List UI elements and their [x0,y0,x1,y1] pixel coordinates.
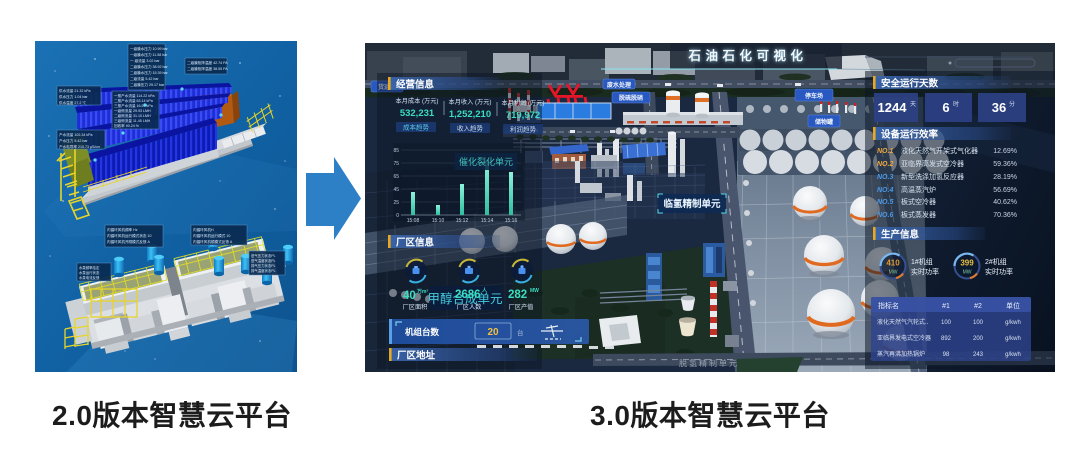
svg-text:产水流量 102.34 kPa: 产水流量 102.34 kPa [59,132,93,137]
svg-text:产水电导率 210.73 µS/cm: 产水电导率 210.73 µS/cm [59,144,100,149]
svg-text:临氢精制单元: 临氢精制单元 [663,198,721,210]
svg-text:1,252,210: 1,252,210 [449,109,491,120]
svg-text:本月收入 (万元): 本月收入 (万元) [449,98,492,106]
svg-text:厂区地址: 厂区地址 [397,350,436,362]
svg-text:二级侧流量 31.10 LMH: 二级侧流量 31.10 LMH [114,113,151,118]
svg-text:56.69%: 56.69% [993,187,1017,194]
svg-text:水泵频率给定: 水泵频率给定 [79,265,100,270]
svg-text:设备运行效率: 设备运行效率 [881,129,939,141]
svg-text:万m²: 万m² [416,288,428,295]
svg-text:水泵运行状态: 水泵运行状态 [79,270,100,275]
svg-text:三级侧流量 11.45 LMH: 三级侧流量 11.45 LMH [114,118,151,123]
svg-text:28.19%: 28.19% [993,174,1017,181]
svg-text:供水温度 27.2 ℃: 供水温度 27.2 ℃ [59,100,86,105]
svg-text:NO.3: NO.3 [877,174,893,181]
svg-text:1#机组: 1#机组 [911,257,933,266]
svg-text:三般产水流量 16.57 kPa: 三般产水流量 16.57 kPa [114,103,153,108]
svg-text:实时功率: 实时功率 [911,267,939,276]
svg-text:二级膜矩阵温度 42.74 PA: 二级膜矩阵温度 42.74 PA [187,60,228,65]
svg-text:排气压力状态PL: 排气压力状态PL [251,263,276,268]
svg-text:12.69%: 12.69% [993,148,1017,155]
svg-text:石油石化可视化: 石油石化可视化 [687,48,807,63]
svg-text:243: 243 [973,352,984,358]
svg-text:NO.5: NO.5 [877,199,893,206]
svg-text:g/kwh: g/kwh [1005,352,1021,358]
svg-text:液化天然气开架式气化器: 液化天然气开架式气化器 [901,146,978,155]
svg-text:利润趋势: 利润趋势 [510,125,537,134]
svg-text:一级膜水压力 10.99 bar: 一级膜水压力 10.99 bar [130,46,169,51]
svg-text:废水处理: 废水处理 [607,81,631,89]
svg-text:亚临界发电式空冷器: 亚临界发电式空冷器 [877,334,931,342]
svg-text:70.36%: 70.36% [993,212,1017,219]
svg-text:供水流量 21.32 kPa: 供水流量 21.32 kPa [59,88,91,93]
svg-text:机组台数: 机组台数 [405,327,440,337]
svg-text:二级膜水压力 15.39 bar: 二级膜水压力 15.39 bar [130,70,169,75]
svg-text:15:10: 15:10 [432,218,445,224]
svg-text:g/kwh: g/kwh [1005,336,1021,342]
svg-text:719,972: 719,972 [506,110,540,121]
svg-text:厂区信息: 厂区信息 [396,237,435,249]
svg-text:厂区面积: 厂区面积 [403,303,428,311]
svg-text:75: 75 [393,161,399,167]
svg-text:一般产水流量 114.22 kPa: 一般产水流量 114.22 kPa [114,93,154,98]
svg-text:MW: MW [889,270,898,276]
svg-text:6: 6 [942,100,949,115]
svg-text:指标名: 指标名 [878,301,899,310]
svg-text:0: 0 [396,213,399,219]
svg-text:脱氢精制单元: 脱氢精制单元 [679,358,739,368]
svg-text:85: 85 [393,148,399,154]
svg-text:#1: #1 [942,303,950,310]
svg-text:65: 65 [393,174,399,180]
svg-text:一级膜水压力 11.58 bar: 一级膜水压力 11.58 bar [130,52,168,57]
svg-text:25: 25 [393,200,399,206]
svg-text:410: 410 [886,259,900,268]
svg-text:892: 892 [941,336,952,342]
svg-text:新型洗涤加氢反应器: 新型洗涤加氢反应器 [901,172,964,181]
svg-text:100: 100 [973,320,984,326]
svg-text:内循环风机H: 内循环风机H [193,227,214,232]
svg-text:15:12: 15:12 [456,218,469,224]
svg-text:分: 分 [1009,100,1015,108]
svg-text:2#机组: 2#机组 [985,257,1007,266]
svg-text:#2: #2 [974,303,982,310]
svg-text:供水压力 1.04 bar: 供水压力 1.04 bar [59,94,88,99]
svg-text:排气温度状态PL: 排气温度状态PL [251,268,276,273]
svg-text:内循环风机开顺模式反馈 A: 内循环风机开顺模式反馈 A [107,239,151,244]
svg-text:二般产水流量 63.14 kPa: 二般产水流量 63.14 kPa [114,98,153,103]
svg-text:生产信息: 生产信息 [881,229,920,241]
svg-text:亚临界高发式空冷器: 亚临界高发式空冷器 [901,159,964,168]
svg-text:本月成本 (万元): 本月成本 (万元) [396,97,439,105]
svg-text:蒸汽再沸加热锅炉: 蒸汽再沸加热锅炉 [877,350,925,358]
svg-text:二级膜水压力 38.92 bar: 二级膜水压力 38.92 bar [130,64,169,69]
svg-text:二级流量 5.42 bar: 二级流量 5.42 bar [130,76,159,81]
svg-text:100: 100 [941,320,952,326]
svg-text:本月利润 (万元): 本月利润 (万元) [502,99,545,107]
svg-text:45: 45 [393,187,399,193]
svg-text:98: 98 [943,352,950,358]
svg-text:59.36%: 59.36% [993,161,1017,168]
svg-text:高温蒸汽炉: 高温蒸汽炉 [901,185,936,194]
svg-text:时: 时 [953,100,959,108]
svg-text:成本趋势: 成本趋势 [403,123,430,132]
svg-text:进气压力状态PL: 进气压力状态PL [251,253,276,258]
svg-text:MW: MW [963,270,972,276]
svg-text:脱硫脱硝: 脱硫脱硝 [619,94,643,102]
svg-text:282: 282 [508,289,527,301]
svg-text:厂区人数: 厂区人数 [457,303,483,311]
svg-text:进气温度状态PL: 进气温度状态PL [251,258,276,263]
svg-text:一级侧流量 29.93 LMH: 一级侧流量 29.93 LMH [114,108,151,113]
svg-text:产水压力 5.42 bar: 产水压力 5.42 bar [59,138,88,143]
svg-text:40.62%: 40.62% [993,199,1017,206]
svg-text:532,231: 532,231 [400,108,435,119]
svg-text:板式空冷器: 板式空冷器 [901,197,936,206]
svg-text:二级膜压力 29.17 bar: 二级膜压力 29.17 bar [130,82,165,87]
svg-text:回收率 90.24 %: 回收率 90.24 % [114,123,140,128]
svg-text:1244: 1244 [878,100,908,115]
svg-text:15:08: 15:08 [407,218,420,224]
svg-text:停车场: 停车场 [805,92,823,100]
svg-text:NO.6: NO.6 [877,212,893,219]
svg-text:单位: 单位 [1006,301,1020,310]
svg-text:399: 399 [960,259,974,268]
svg-text:内循环风机运行模式状态 10: 内循环风机运行模式状态 10 [107,233,152,238]
svg-text:台: 台 [517,328,524,337]
svg-text:36: 36 [992,100,1006,115]
svg-text:储物罐: 储物罐 [814,118,833,126]
svg-text:NO.4: NO.4 [877,187,893,194]
svg-text:厂区产值: 厂区产值 [509,303,534,311]
svg-text:NO.2: NO.2 [877,161,893,168]
svg-text:一 级流量 3.02 bar: 一 级流量 3.02 bar [130,58,160,63]
svg-text:实时功率: 实时功率 [985,267,1013,276]
svg-text:200: 200 [973,336,984,342]
svg-text:收入趋势: 收入趋势 [457,124,484,133]
svg-text:2686: 2686 [455,289,481,301]
svg-text:15:16: 15:16 [505,218,518,224]
svg-text:40: 40 [403,290,416,302]
svg-text:15:14: 15:14 [481,218,494,224]
svg-text:板式蒸发器: 板式蒸发器 [901,210,936,219]
svg-text:内循环风机顺模式反馈 A: 内循环风机顺模式反馈 A [193,239,233,244]
svg-text:安全运行天数: 安全运行天数 [881,78,939,90]
svg-text:内循环风机频率 Hz: 内循环风机频率 Hz [107,227,138,232]
svg-text:g/kwh: g/kwh [1005,320,1021,326]
svg-text:人: 人 [481,287,488,294]
svg-text:液化天然气汽轮式..: 液化天然气汽轮式.. [877,318,929,326]
svg-text:内循环风机运行模式 10: 内循环风机运行模式 10 [193,233,230,238]
svg-text:催化裂化单元: 催化裂化单元 [459,156,513,167]
svg-text:水泵电流反馈: 水泵电流反馈 [79,275,100,280]
svg-text:NO.1: NO.1 [877,148,893,155]
svg-text:经营信息: 经营信息 [396,79,435,91]
svg-text:MW: MW [530,288,539,294]
svg-text:20: 20 [487,327,499,338]
svg-text:二级膜矩阵温度 38.55 PA: 二级膜矩阵温度 38.55 PA [187,66,228,71]
svg-text:天: 天 [910,101,916,108]
